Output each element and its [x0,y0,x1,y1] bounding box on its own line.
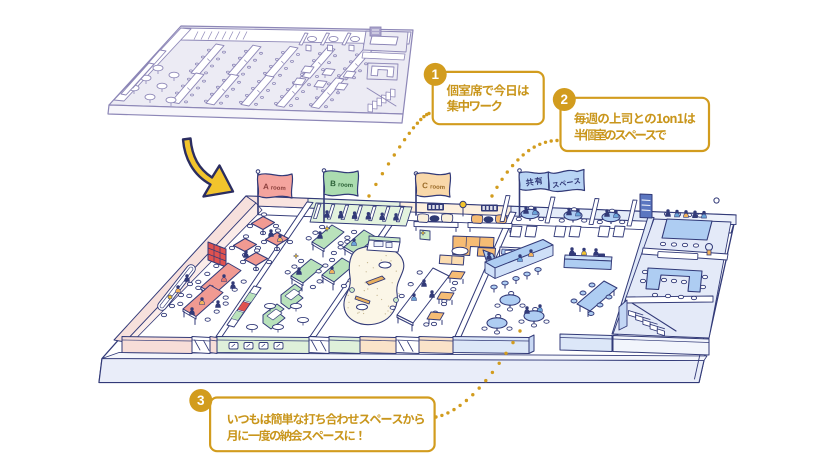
svg-text:3: 3 [197,393,205,408]
svg-text:1: 1 [431,67,439,82]
svg-text:2: 2 [561,92,569,107]
